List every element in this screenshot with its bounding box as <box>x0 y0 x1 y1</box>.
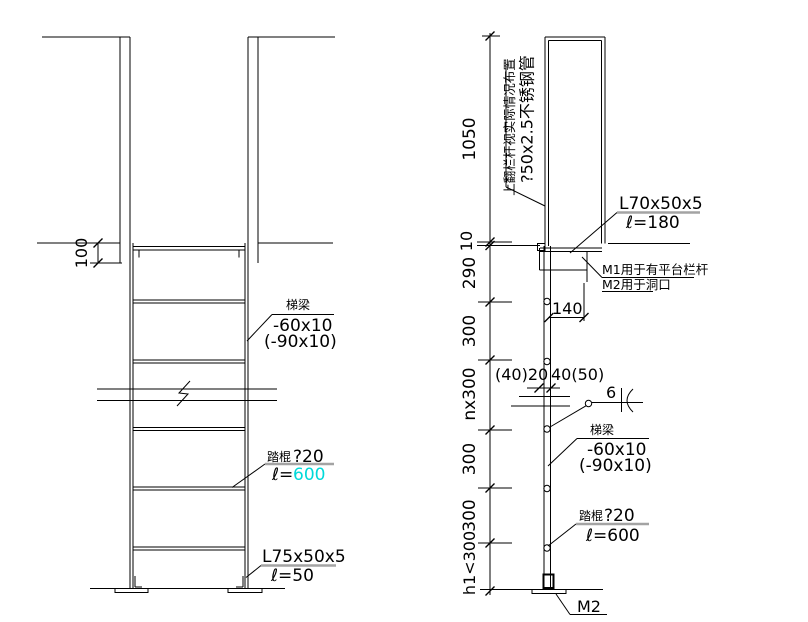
front-shoe-size: L75x50x5 <box>262 547 346 567</box>
dim-300-b: 300 <box>460 443 480 475</box>
side-usage-note: M1用于有平台栏杆 M2用于洞口 <box>582 257 709 292</box>
side-base-label: M2 <box>556 594 607 616</box>
side-rung-name: 踏棍 <box>579 509 603 523</box>
dim-nx300: nx300 <box>460 367 480 420</box>
front-beam-name: 梯梁 <box>286 297 310 312</box>
side-weld-mark: 6 <box>550 383 643 427</box>
dim-10: 10 <box>457 231 476 251</box>
rail-note-line1: 上翻栏杆视实际情况布置 <box>502 58 517 196</box>
dim-40-20-text: (40)20 <box>495 365 548 384</box>
drawing-canvas: 100 梯梁 -60x10 (-90x10) 踏棍 ?20 ℓ= 600 L75… <box>0 0 808 622</box>
angle-size-text: L70x50x5 <box>619 194 703 214</box>
side-rung-dia: ?20 <box>604 506 635 526</box>
front-shoe-label: L75x50x5 ℓ=50 <box>246 547 346 586</box>
front-rung-dia: ?20 <box>293 447 324 467</box>
front-beam-alt-size: (-90x10) <box>264 332 337 352</box>
break-symbol <box>177 381 190 406</box>
dim-290: 290 <box>460 257 480 289</box>
side-beam-alt-size: (-90x10) <box>579 456 652 476</box>
front-dim-100: 100 <box>72 238 122 269</box>
usage-note-line2: M2用于洞口 <box>602 277 671 292</box>
front-beam-label: 梯梁 -60x10 (-90x10) <box>247 297 337 352</box>
front-shoe-len: ℓ=50 <box>270 566 314 586</box>
side-rail-note: 上翻栏杆视实际情况布置 ?50x2.5不锈钢管 <box>502 55 545 206</box>
dim-h1-300: h1<300 <box>460 531 479 595</box>
front-rung-label: 踏棍 ?20 ℓ= 600 <box>232 447 334 488</box>
side-beam-label: 梯梁 -60x10 (-90x10) <box>548 422 652 476</box>
dim-300-a: 300 <box>460 315 480 347</box>
weld-symbol-arc <box>627 389 633 412</box>
side-view: 1050 10 290 300 nx300 300 300 h1<300 <box>457 32 709 617</box>
front-rung-len-value: 600 <box>293 465 325 485</box>
dim-300-c: 300 <box>460 499 480 531</box>
front-rung-len-prefix: ℓ= <box>271 465 293 485</box>
dim-100-text: 100 <box>72 238 91 269</box>
side-beam-name: 梯梁 <box>590 422 614 437</box>
usage-note-line1: M1用于有平台栏杆 <box>602 262 709 277</box>
side-rung-len: ℓ=600 <box>585 526 640 546</box>
side-dim-holes: (40)20 40(50) <box>495 365 604 393</box>
rail-note-line2: ?50x2.5不锈钢管 <box>518 55 537 183</box>
angle-len-text: ℓ=180 <box>625 213 680 233</box>
side-dim-140: 140 <box>545 283 589 322</box>
dim-1050: 1050 <box>460 117 480 160</box>
dim-40-50-text: 40(50) <box>551 365 604 384</box>
side-rung-label: 踏棍 ?20 ℓ=600 <box>548 506 649 546</box>
front-rung-name: 踏棍 <box>267 450 291 464</box>
weld-size-text: 6 <box>606 383 616 402</box>
base-m2-text: M2 <box>577 597 601 616</box>
ladder-technical-drawing: 100 梯梁 -60x10 (-90x10) 踏棍 ?20 ℓ= 600 L75… <box>0 0 808 622</box>
front-view: 100 梯梁 -60x10 (-90x10) 踏棍 ?20 ℓ= 600 L75… <box>37 37 346 593</box>
side-angle-label: L70x50x5 ℓ=180 <box>570 194 703 253</box>
dim-140-text: 140 <box>552 299 583 318</box>
